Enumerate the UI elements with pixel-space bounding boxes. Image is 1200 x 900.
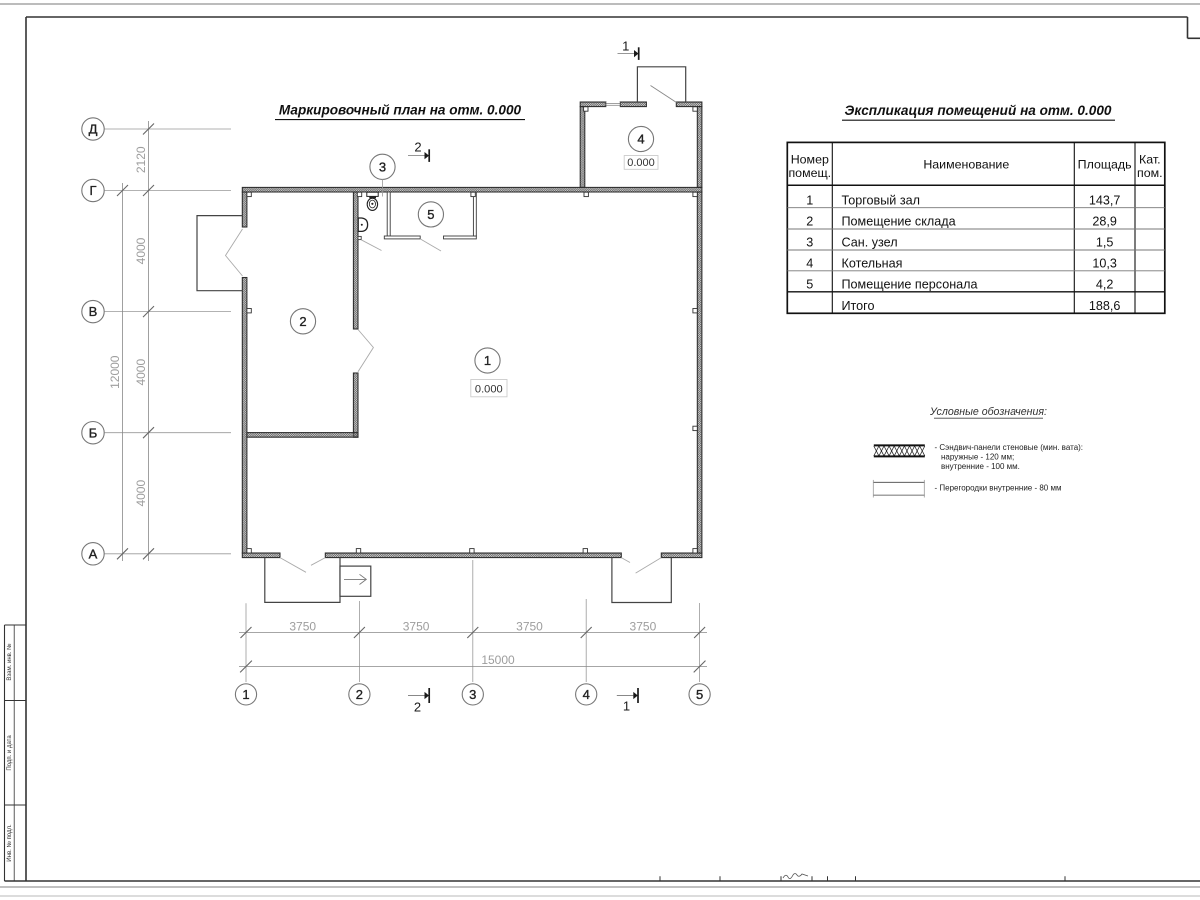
svg-text:10,3: 10,3 [1092, 256, 1117, 270]
svg-text:Итого: Итого [842, 299, 875, 313]
svg-text:5: 5 [696, 687, 703, 702]
svg-text:5: 5 [806, 277, 813, 291]
svg-text:0.000: 0.000 [475, 383, 503, 395]
svg-text:пом.: пом. [1137, 166, 1163, 180]
svg-text:2: 2 [414, 699, 421, 714]
svg-text:2: 2 [356, 687, 363, 702]
svg-text:3750: 3750 [516, 620, 543, 634]
svg-text:1: 1 [806, 193, 813, 207]
svg-text:Взам. инв. №: Взам. инв. № [6, 643, 13, 680]
svg-text:Сан. узел: Сан. узел [842, 236, 898, 250]
svg-text:5: 5 [427, 207, 434, 222]
svg-text:15000: 15000 [481, 653, 515, 667]
svg-text:1: 1 [622, 38, 629, 53]
svg-text:Помещение склада: Помещение склада [842, 215, 956, 229]
svg-text:Инв. № подл.: Инв. № подл. [6, 824, 13, 862]
svg-text:12000: 12000 [108, 355, 122, 389]
svg-text:188,6: 188,6 [1089, 299, 1121, 313]
svg-text:1: 1 [242, 687, 249, 702]
svg-text:В: В [89, 304, 98, 319]
svg-text:- Перегородки внутренние - 80: - Перегородки внутренние - 80 мм [935, 484, 1062, 493]
svg-text:0.000: 0.000 [627, 157, 655, 169]
svg-text:Д: Д [89, 122, 98, 137]
svg-text:2: 2 [299, 314, 306, 329]
svg-text:3750: 3750 [630, 620, 657, 634]
svg-text:наружные - 120 мм;: наружные - 120 мм; [941, 453, 1014, 462]
svg-text:внутренние - 100 мм.: внутренние - 100 мм. [941, 462, 1020, 471]
svg-text:4: 4 [637, 132, 644, 147]
svg-text:Торговый зал: Торговый зал [842, 193, 920, 207]
svg-text:4,2: 4,2 [1096, 277, 1114, 291]
svg-text:4: 4 [583, 687, 590, 702]
svg-text:4000: 4000 [134, 359, 148, 386]
svg-text:Помещение персонала: Помещение персонала [842, 277, 978, 291]
svg-text:4000: 4000 [134, 480, 148, 507]
svg-text:Экспликация помещений на отм.: Экспликация помещений на отм. 0.000 [845, 103, 1112, 118]
svg-text:Условные обозначения:: Условные обозначения: [929, 406, 1047, 418]
svg-text:2120: 2120 [134, 146, 148, 173]
svg-text:Маркировочный план на отм. 0.0: Маркировочный план на отм. 0.000 [279, 103, 522, 118]
svg-text:4: 4 [806, 256, 813, 270]
svg-text:28,9: 28,9 [1092, 215, 1117, 229]
svg-text:1: 1 [484, 353, 491, 368]
svg-text:Подп. и дата: Подп. и дата [7, 735, 13, 771]
svg-text:Наименование: Наименование [923, 157, 1009, 171]
svg-text:Номер: Номер [791, 152, 829, 166]
svg-text:2: 2 [414, 139, 421, 154]
svg-text:Кат.: Кат. [1139, 152, 1161, 166]
svg-text:1,5: 1,5 [1096, 236, 1114, 250]
svg-text:3: 3 [806, 236, 813, 250]
svg-text:143,7: 143,7 [1089, 193, 1121, 207]
svg-text:3750: 3750 [289, 620, 316, 634]
svg-text:3750: 3750 [403, 620, 430, 634]
svg-text:4000: 4000 [134, 237, 148, 264]
svg-text:Площадь: Площадь [1078, 157, 1132, 171]
svg-text:2: 2 [806, 215, 813, 229]
svg-text:3: 3 [469, 687, 476, 702]
svg-text:помещ.: помещ. [788, 166, 831, 180]
svg-text:Котельная: Котельная [842, 256, 903, 270]
svg-text:3: 3 [379, 159, 386, 174]
svg-text:А: А [89, 546, 98, 561]
svg-text:Б: Б [89, 425, 98, 440]
svg-text:- Сэндвич-панели стеновые (мин: - Сэндвич-панели стеновые (мин. вата): [935, 443, 1084, 452]
svg-text:1: 1 [623, 699, 630, 714]
svg-text:Г: Г [89, 183, 96, 198]
